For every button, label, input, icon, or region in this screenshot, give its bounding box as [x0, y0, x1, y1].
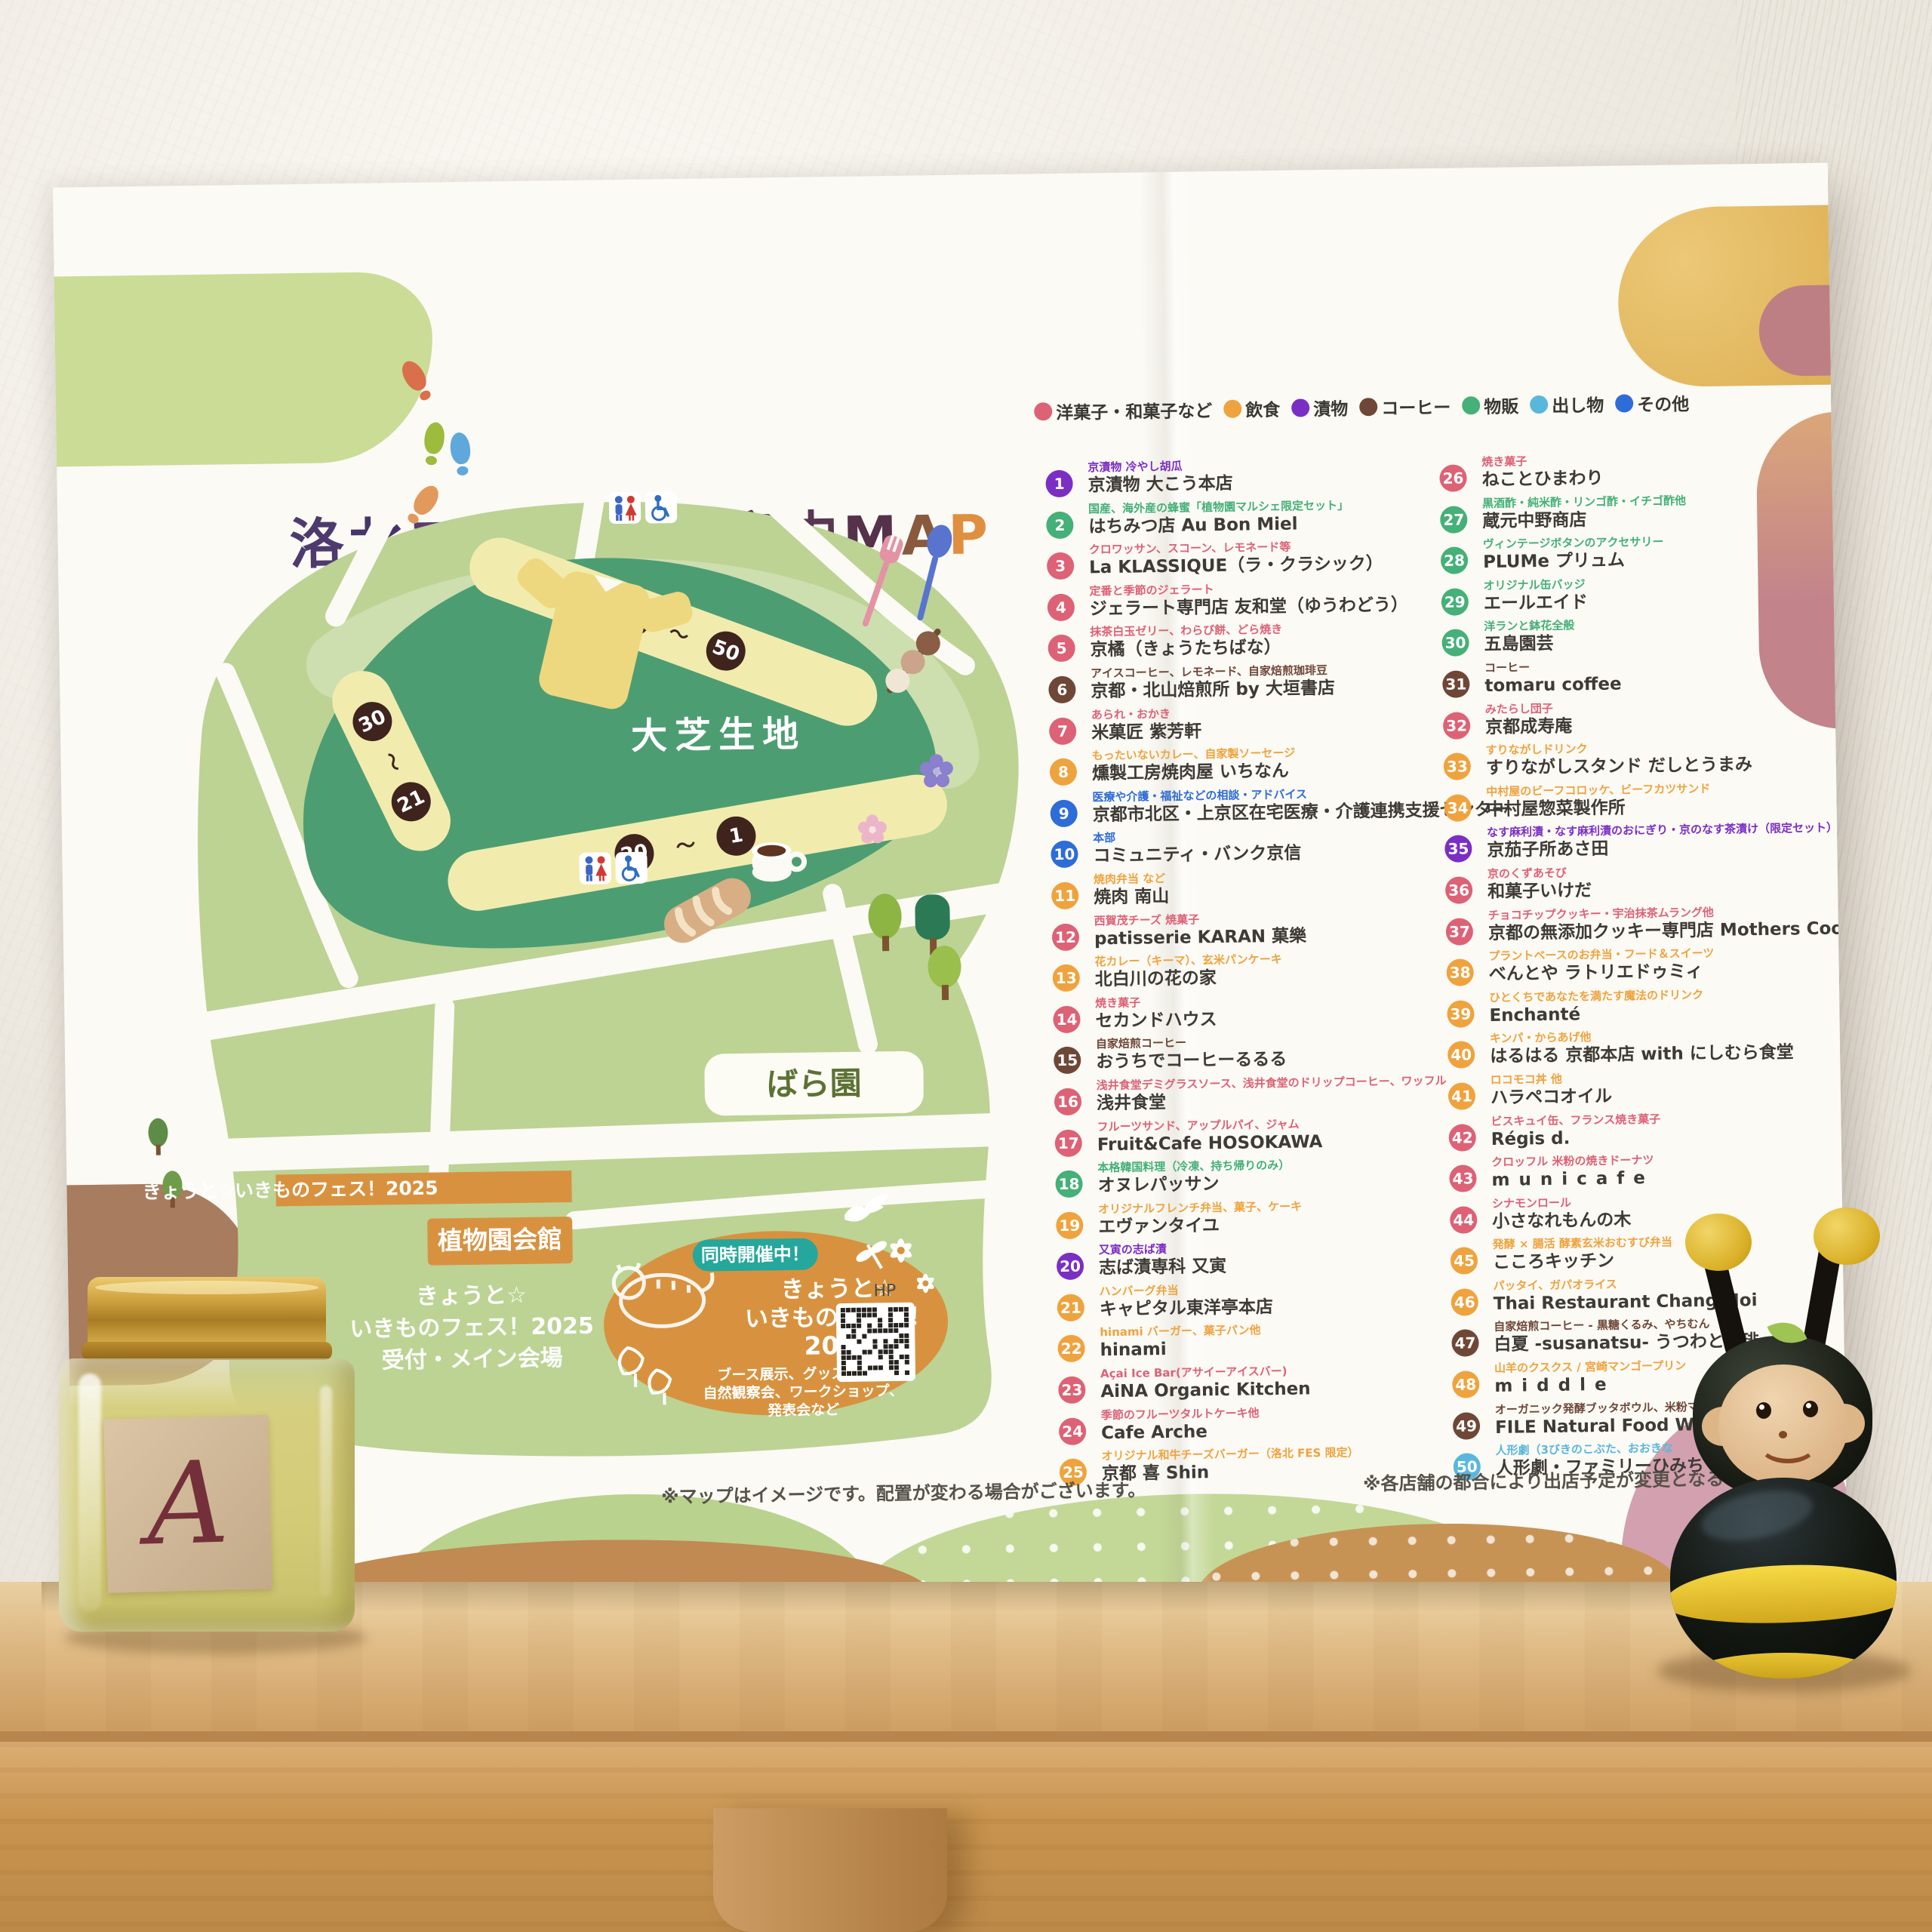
- stall-number-badge: 28: [1441, 547, 1468, 574]
- stall-name: 中村屋惣菜製作所: [1486, 795, 1710, 821]
- stall-row: 28 ヴィンテージボタンのアクセサリー PLUMe プリュム: [1441, 531, 1847, 578]
- stall-name: Fruit&Cafe HOSOKAWA: [1097, 1131, 1323, 1156]
- stall-number-badge: 48: [1452, 1371, 1479, 1398]
- stall-name: 京漬物 大こう本店: [1088, 472, 1232, 497]
- stall-row: 33 すりながしドリンク すりながしスタンド だしとうまみ: [1443, 737, 1847, 784]
- stall-row: 18 本格韓国料理（冷凍、持ち帰りのみ） オヌレパッサン: [1055, 1155, 1478, 1201]
- stall-name: 和菓子いけだ: [1487, 879, 1592, 903]
- stall-category-line: みたらし団子: [1485, 701, 1572, 716]
- stall-number-badge: 18: [1055, 1171, 1082, 1198]
- stall-category-line: 焼き菓子: [1481, 454, 1603, 469]
- category-legend: 洋菓子・和菓子など 飲食 漬物 コーヒー 物販: [1034, 389, 1689, 424]
- stall-name: 京都の無添加クッキー専門店 Mothers Cookie: [1488, 916, 1847, 944]
- category-dot-icon: [1291, 398, 1309, 417]
- jar-lid: [88, 1277, 326, 1346]
- stall-number-badge: 40: [1447, 1041, 1475, 1069]
- stall-category-line: ロコモコ丼 他: [1491, 1072, 1612, 1087]
- stall-number-badge: 42: [1448, 1124, 1475, 1151]
- stall-number-badge: 49: [1453, 1412, 1480, 1439]
- legend-label: その他: [1637, 389, 1689, 416]
- bee-antenna-pompom: [1814, 1207, 1880, 1265]
- stall-name: こころキッチン: [1493, 1249, 1673, 1274]
- stall-row: 3 クロワッサン、スコーン、レモネード等 La KLASSIQUE（ラ・クラシッ…: [1047, 537, 1470, 584]
- bee-yellow-band: [1670, 1561, 1897, 1626]
- stall-name: べんとや ラトリエドゥミィ: [1489, 960, 1715, 986]
- stall-name: 五島園芸: [1484, 632, 1574, 657]
- stall-name: ジェラート専門店 友和堂（ゆうわどう）: [1090, 593, 1408, 620]
- event-desc: 発表会など: [767, 1401, 839, 1419]
- stall-name: hinami: [1100, 1337, 1261, 1362]
- lawn-label: 大芝生地: [631, 713, 807, 758]
- hall-label: 植物園会館: [438, 1224, 563, 1255]
- stall-category-line: あられ・おかき: [1091, 706, 1201, 721]
- stall-row: 6 アイスコーヒー、レモネード、自家焙煎珈琲豆 京都・北山焙煎所 by 大垣書店: [1048, 660, 1472, 707]
- stall-row: 4 定番と季節のジェラート ジェラート専門店 友和堂（ゆうわどう）: [1047, 578, 1470, 625]
- legend-label: コーヒー: [1381, 393, 1451, 420]
- stall-category-line: 洋ランと鉢花全般: [1484, 619, 1574, 634]
- stall-category-line: 花カレー（キーマ）、玄米パンケーキ: [1094, 952, 1281, 968]
- stall-row: 8 もったいないカレー、自家製ソーセージ 燻製工房焼肉屋 いちなん: [1050, 743, 1473, 789]
- stall-category-line: ヴィンテージボタンのアクセサリー: [1483, 535, 1664, 551]
- stall-number-badge: 47: [1451, 1330, 1478, 1357]
- stall-name: 京都成寿庵: [1485, 715, 1572, 739]
- event-desc: 自然観察会、ワークショップ、: [703, 1382, 904, 1402]
- stall-row: 9 医療や介護・福祉などの相談・アドバイス 京都市北区・上京区在宅医療・介護連携…: [1050, 784, 1473, 831]
- stall-name: エールエイド: [1484, 591, 1588, 615]
- stall-category-line: 本格韓国料理（冷凍、持ち帰りのみ）: [1097, 1158, 1290, 1175]
- stall-list-left: 1 京漬物 冷やし胡瓜 京漬物 大こう本店 2 国産、海外産の蜂蜜「植物園マルシ…: [1045, 454, 1482, 1491]
- bee-eye: [1756, 1402, 1771, 1419]
- stall-number-badge: 16: [1054, 1088, 1081, 1115]
- hp-label: HP: [873, 1281, 896, 1300]
- stall-row: 22 hinami バーガー、菓子パン他 hinami: [1057, 1320, 1481, 1367]
- stall-number-badge: 15: [1054, 1047, 1081, 1074]
- stall-row: 35 なす麻利漬・なす麻利漬のおにぎり・京のなす茶漬け（限定セット） 京茄子所あ…: [1444, 820, 1847, 866]
- bee-body: [1670, 1478, 1897, 1678]
- stall-category-line: オリジナル缶バッジ: [1483, 577, 1587, 592]
- shelf-front-face: [0, 1742, 1932, 1932]
- stall-name: Cafe Arche: [1101, 1420, 1260, 1444]
- stall-number-badge: 10: [1051, 841, 1078, 868]
- stall-number-badge: 6: [1048, 676, 1075, 703]
- stall-name: キャピタル東洋亭本店: [1100, 1296, 1273, 1321]
- stall-number-badge: 31: [1442, 670, 1469, 697]
- stall-row: 13 花カレー（キーマ）、玄米パンケーキ 北白川の花の家: [1052, 949, 1475, 995]
- stall-name: 志ば漬専科 又寅: [1099, 1255, 1226, 1279]
- jar-highlight: [78, 1374, 101, 1612]
- stall-name: patisserie KARAN 菓樂: [1094, 924, 1306, 950]
- stall-number-badge: 36: [1445, 876, 1472, 903]
- stall-row: 20 又寅の志ば漬 志ば漬専科 又寅: [1057, 1238, 1480, 1284]
- stall-row: 23 Açai Ice Bar(アサイーアイスバー) AiNA Organic …: [1058, 1361, 1481, 1407]
- stall-number-badge: 43: [1449, 1164, 1476, 1192]
- reception-line: いきものフェス！2025: [349, 1313, 594, 1343]
- stall-row: 19 オリジナルフレンチ弁当、菓子、ケーキ エヴァンタイユ: [1056, 1196, 1479, 1243]
- stall-name: 北白川の花の家: [1095, 966, 1283, 991]
- stall-category-line: 京のくずあそび: [1487, 866, 1592, 881]
- stall-number-badge: 5: [1048, 635, 1075, 662]
- stall-row: 32 みたらし団子 京都成寿庵: [1443, 697, 1847, 743]
- bee-antenna-pompom: [1685, 1214, 1752, 1271]
- stall-number-badge: 13: [1052, 964, 1079, 992]
- stall-row: 24 季節のフルーツタルトケーキ他 Cafe Arche: [1059, 1402, 1482, 1449]
- stall-number-badge: 14: [1053, 1005, 1080, 1032]
- legend-label: 物販: [1484, 392, 1518, 418]
- stall-row: 30 洋ランと鉢花全般 五島園芸: [1441, 614, 1847, 660]
- stall-number-badge: 29: [1441, 588, 1469, 615]
- stall-name: tomaru coffee: [1484, 673, 1622, 698]
- category-dot-icon: [1034, 402, 1052, 420]
- stall-row: 17 フルーツサンド、アップルパイ、ジャム Fruit&Cafe HOSOKAW…: [1054, 1114, 1478, 1161]
- stall-name: Enchanté: [1489, 1001, 1703, 1027]
- stall-number-badge: 7: [1049, 717, 1076, 744]
- stall-row: 42 ビスキュイ缶、フランス焼き菓子 Régis d.: [1448, 1108, 1847, 1155]
- stall-number-badge: 20: [1057, 1253, 1084, 1280]
- legend-item: その他: [1615, 389, 1689, 416]
- stall-number-badge: 17: [1055, 1129, 1082, 1156]
- stall-category-line: オリジナルフレンチ弁当、菓子、ケーキ: [1098, 1199, 1302, 1216]
- stall-row: 26 焼き菓子 ねことひまわり: [1439, 449, 1847, 496]
- stall-number-badge: 22: [1057, 1335, 1084, 1362]
- stall-number-badge: 41: [1448, 1082, 1475, 1109]
- stall-number-badge: 3: [1047, 552, 1074, 580]
- stall-row: 7 あられ・おかき 米菓匠 紫芳軒: [1049, 702, 1472, 749]
- reception-line: 受付・メイン会場: [381, 1345, 562, 1374]
- jar-lid-rim: [82, 1342, 332, 1360]
- event-badge: 同時開催中！: [701, 1244, 810, 1266]
- stall-name: はちみつ店 Au Bon Miel: [1088, 512, 1349, 538]
- stall-name: La KLASSIQUE（ラ・クラシック）: [1089, 552, 1383, 579]
- jar-label: A: [103, 1415, 272, 1593]
- stall-row: 12 西賀茂チーズ 焼菓子 patisserie KARAN 菓樂: [1052, 908, 1475, 955]
- legend-label: 漬物: [1313, 395, 1348, 421]
- stall-row: 29 オリジナル缶バッジ エールエイド: [1441, 573, 1847, 620]
- category-dot-icon: [1223, 400, 1241, 418]
- category-dot-icon: [1359, 398, 1377, 416]
- stall-row: 14 焼き菓子 セカンドハウス: [1053, 990, 1476, 1037]
- stall-number-badge: 9: [1050, 799, 1077, 826]
- stall-number-badge: 27: [1440, 506, 1467, 533]
- bee-yellow-band: [1678, 1653, 1894, 1678]
- stall-name: エヴァンタイユ: [1098, 1213, 1302, 1238]
- stall-name: 浅井食堂: [1097, 1088, 1447, 1115]
- stall-name: 京茄子所あさ田: [1487, 835, 1838, 862]
- bee-figurine: [1649, 1217, 1915, 1678]
- stall-number-badge: 44: [1450, 1206, 1477, 1233]
- legend-item: コーヒー: [1359, 393, 1451, 420]
- stall-number-badge: 4: [1048, 593, 1075, 620]
- legend-item: 飲食: [1223, 395, 1280, 422]
- stall-category-line: ビスキュイ缶、フランス焼き菓子: [1491, 1112, 1660, 1128]
- category-dot-icon: [1530, 395, 1548, 414]
- stall-name: セカンドハウス: [1095, 1008, 1217, 1032]
- stall-name: ねことひまわり: [1481, 467, 1603, 491]
- stall-row: 1 京漬物 冷やし胡瓜 京漬物 大こう本店: [1045, 454, 1469, 501]
- stall-category-line: hinami バーガー、菓子パン他: [1100, 1324, 1260, 1340]
- stall-row: 38 プラントベースのお弁当・フード＆スイーツ べんとや ラトリエドゥミィ: [1446, 943, 1847, 990]
- stall-name: ハラペコオイル: [1491, 1085, 1612, 1109]
- ikimono-banner-label: きょうと☆いきものフェス！2025: [142, 1177, 438, 1203]
- stall-number-badge: 32: [1443, 712, 1470, 739]
- stall-row: 11 焼肉弁当 など 焼肉 南山: [1051, 866, 1475, 913]
- stall-row: 5 抹茶白玉ゼリー、わらび餅、どら焼き 京橘（きょうたちばな）: [1048, 620, 1471, 666]
- svg-text:〜: 〜: [674, 833, 697, 859]
- stall-name: 焼肉 南山: [1094, 885, 1169, 909]
- stall-category-line: 季節のフルーツタルトケーキ他: [1101, 1406, 1260, 1422]
- shelf-front-edge: [0, 1731, 1932, 1742]
- stall-number-badge: 37: [1446, 918, 1473, 945]
- stall-row: 16 浅井食堂デミグラスソース、浅井食堂のドリップコーヒー、ワッフル 浅井食堂: [1054, 1072, 1478, 1119]
- legend-item: 漬物: [1291, 395, 1348, 421]
- stall-name: はるはる 京都本店 with にしむら食堂: [1490, 1041, 1794, 1069]
- stall-number-badge: 26: [1439, 464, 1466, 491]
- bee-body-sheen: [1697, 1481, 1817, 1549]
- legend-item: 物販: [1462, 392, 1518, 418]
- legend-item: 出し物: [1530, 391, 1604, 417]
- bee-face: [1718, 1364, 1848, 1485]
- stall-row: 43 クロッフル 米粉の焼きドーナツ municafe: [1449, 1149, 1847, 1196]
- stall-number-badge: 23: [1058, 1377, 1085, 1404]
- category-dot-icon: [1615, 394, 1633, 412]
- stall-row: 2 国産、海外産の蜂蜜「植物園マルシェ限定セット」 はちみつ店 Au Bon M…: [1046, 496, 1469, 543]
- jar-highlight: [320, 1386, 332, 1597]
- stall-name: 京橘（きょうたちばな）: [1090, 636, 1282, 662]
- stall-number-badge: 1: [1045, 470, 1072, 497]
- stall-row: 15 自家焙煎コーヒー おうちでコーヒーるるる: [1054, 1032, 1477, 1078]
- stall-number-badge: 24: [1059, 1417, 1086, 1444]
- qr-code: [836, 1303, 915, 1382]
- stall-name: 小さなれもんの木: [1492, 1208, 1631, 1233]
- stall-number-badge: 35: [1444, 835, 1472, 863]
- bee-eye: [1803, 1401, 1818, 1417]
- stall-category-line: 黒酒酢・純米酢・リンゴ酢・イチゴ酢他: [1482, 494, 1686, 510]
- stall-number-badge: 45: [1451, 1247, 1478, 1275]
- legend-item: 洋菓子・和菓子など: [1034, 396, 1212, 424]
- stall-name: 米菓匠 紫芳軒: [1091, 720, 1201, 744]
- stall-number-badge: 21: [1057, 1294, 1084, 1321]
- stall-name: municafe: [1491, 1167, 1654, 1192]
- stall-category-line: 焼き菓子: [1095, 995, 1217, 1010]
- stall-row: 34 中村屋のビーフコロッケ、ビーフカツサンド 中村屋惣菜製作所: [1444, 779, 1847, 826]
- stall-number-badge: 11: [1051, 882, 1078, 909]
- stall-name: PLUMe プリュム: [1483, 549, 1664, 574]
- stall-row: 36 京のくずあそび 和菓子いけだ: [1445, 861, 1847, 908]
- stall-row: 40 キンパ・からあげ他 はるはる 京都本店 with にしむら食堂: [1447, 1026, 1847, 1072]
- stall-row: 10 本部 コミュニティ・バンク京信: [1051, 826, 1474, 872]
- bee-smile: [1759, 1428, 1817, 1463]
- rose-garden-label: ばら園: [766, 1065, 862, 1103]
- stall-name: すりながしスタンド だしとうまみ: [1486, 753, 1752, 780]
- shelf-bracket: [713, 1808, 947, 1932]
- stall-number-badge: 33: [1444, 753, 1471, 780]
- stall-name: オヌレパッサン: [1097, 1172, 1290, 1198]
- stall-number-badge: 19: [1056, 1211, 1083, 1238]
- stall-number-badge: 38: [1446, 958, 1473, 986]
- stall-number-badge: 8: [1050, 758, 1077, 786]
- stall-name: AiNA Organic Kitchen: [1100, 1377, 1311, 1403]
- stall-number-badge: 2: [1046, 511, 1073, 538]
- stall-name: 蔵元中野商店: [1482, 507, 1686, 533]
- stall-row: 31 コーヒー tomaru coffee: [1442, 655, 1847, 702]
- legend-label: 飲食: [1245, 395, 1280, 422]
- stall-number-badge: 39: [1447, 1000, 1474, 1027]
- stall-category-line: 発酵 × 腸活 酵素玄米おむすび弁当: [1493, 1235, 1672, 1251]
- stall-row: 27 黒酒酢・純米酢・リンゴ酢・イチゴ酢他 蔵元中野商店: [1440, 491, 1847, 537]
- stall-name: おうちでコーヒーるるる: [1096, 1048, 1287, 1074]
- legend-label: 洋菓子・和菓子など: [1056, 396, 1212, 424]
- stall-name: 京都・北山焙煎所 by 大垣書店: [1091, 677, 1335, 703]
- stall-category-line: 又寅の志ば漬: [1099, 1241, 1226, 1257]
- stall-row: 37 チョコチップクッキー・宇治抹茶ムラング他 京都の無添加クッキー専門店 Mo…: [1446, 903, 1848, 949]
- stall-name: Régis d.: [1491, 1125, 1661, 1150]
- reception-line: きょうと☆: [416, 1282, 527, 1310]
- legend-label: 出し物: [1552, 391, 1604, 417]
- stall-row: 39 ひとくちであなたを満たす魔法のドリンク Enchanté: [1447, 985, 1847, 1032]
- stall-row: 21 ハンバーグ弁当 キャピタル東洋亭本店: [1057, 1278, 1480, 1325]
- stall-number-badge: 30: [1441, 629, 1469, 657]
- jar-monogram: A: [146, 1447, 230, 1562]
- stall-category-line: 焼肉弁当 など: [1094, 872, 1169, 886]
- stall-row: 41 ロコモコ丼 他 ハラペコオイル: [1448, 1067, 1847, 1114]
- stall-name: コミュニティ・バンク京信: [1093, 842, 1301, 868]
- stall-number-badge: 46: [1451, 1288, 1478, 1315]
- stall-number-badge: 12: [1052, 923, 1079, 950]
- category-dot-icon: [1462, 396, 1480, 414]
- stall-name: 燻製工房焼肉屋 いちなん: [1092, 760, 1296, 786]
- stall-number-badge: 34: [1444, 794, 1471, 821]
- honey-jar: A: [39, 1272, 371, 1650]
